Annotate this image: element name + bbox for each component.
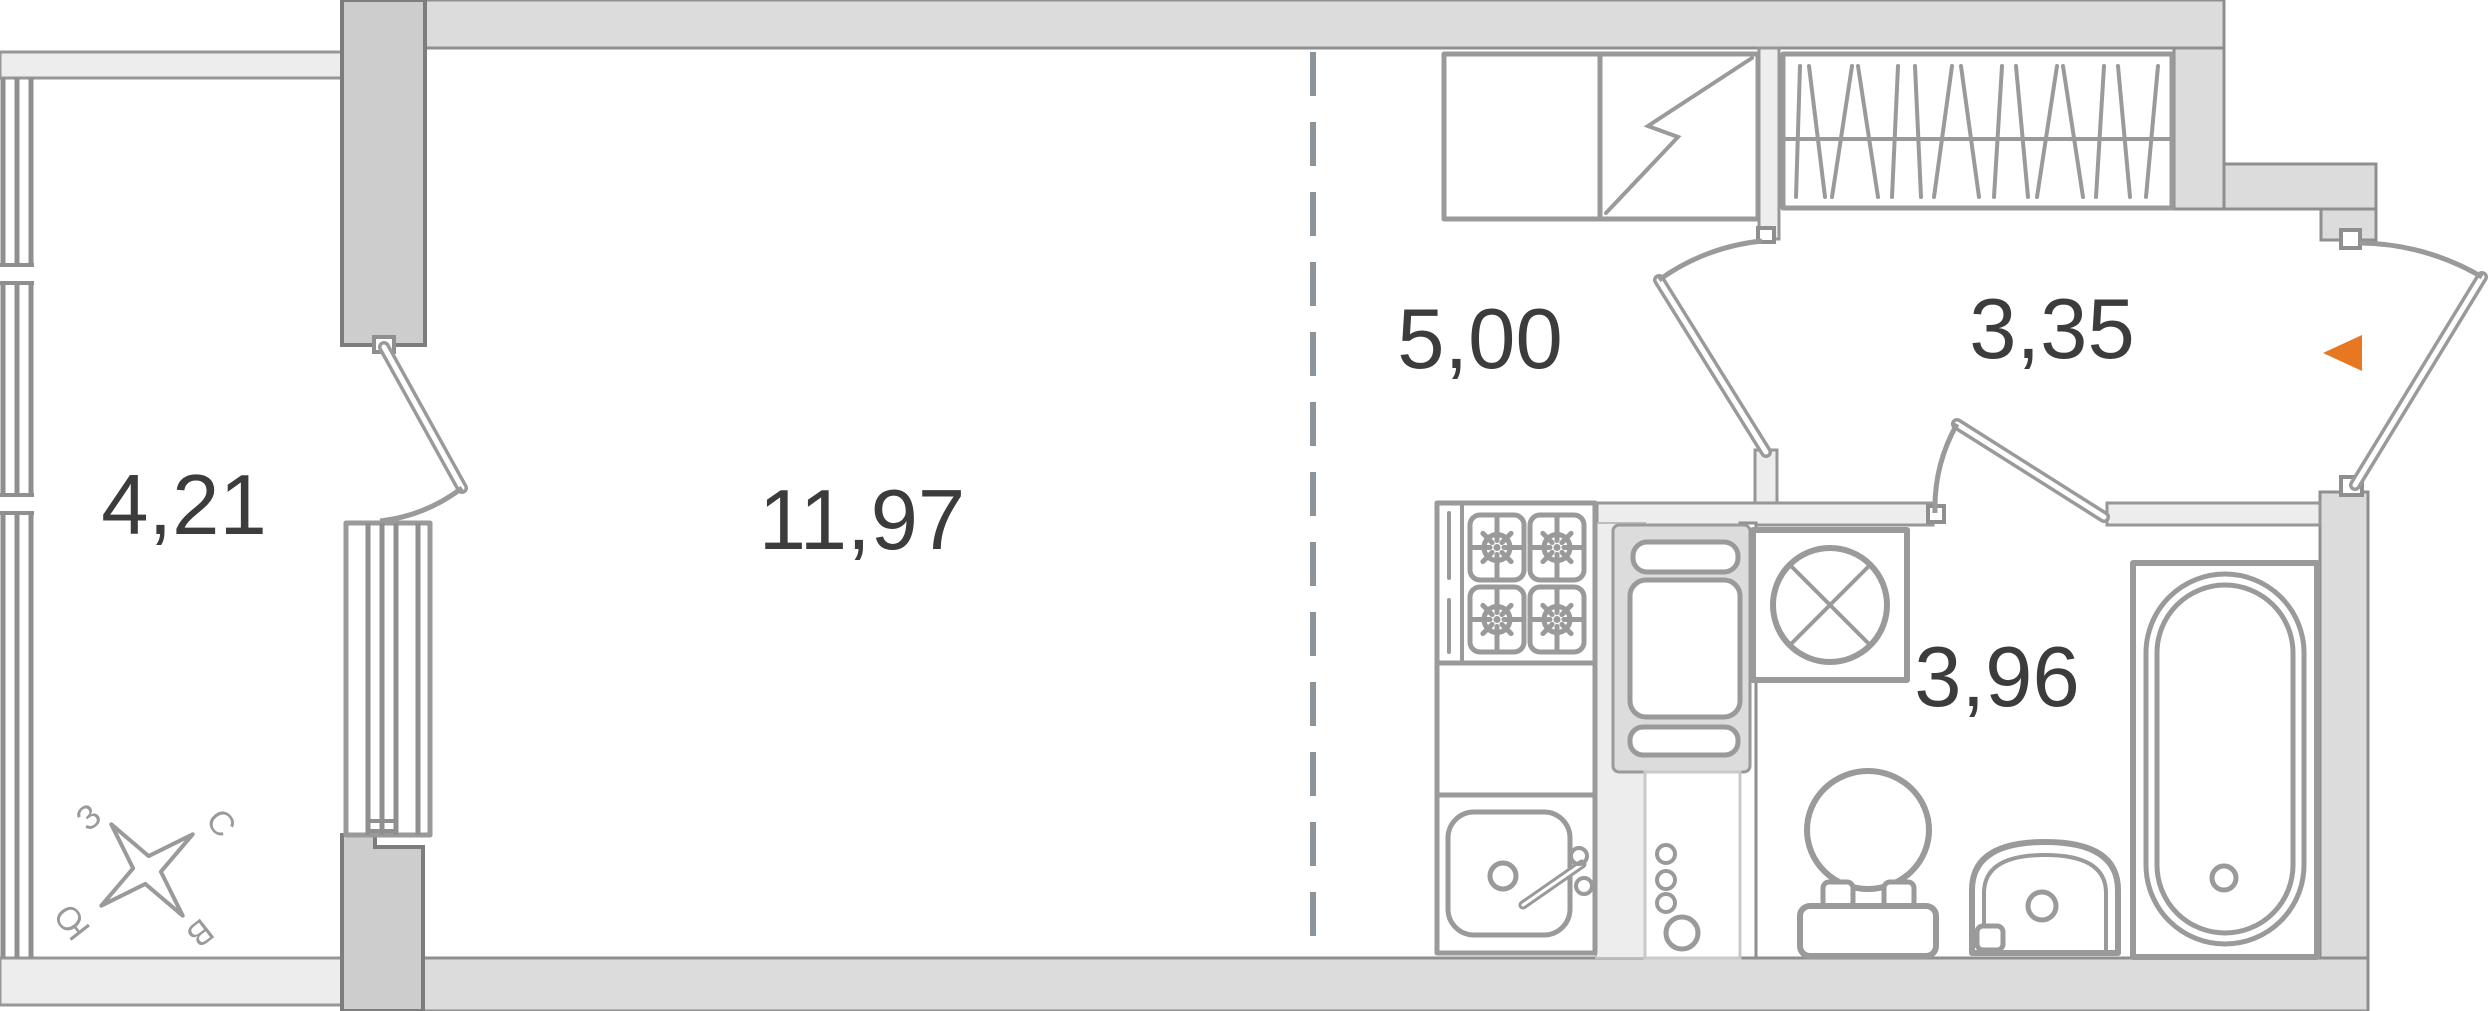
area-label-living-room: 11,97 (759, 473, 965, 568)
wardrobe-icon (1783, 54, 2172, 208)
door-swing-arc (1935, 424, 1957, 513)
stove-icon (1437, 503, 1595, 663)
door-swing-arc (380, 488, 462, 521)
entrance-arrow-icon (2323, 335, 2362, 371)
compass-north-label: С (198, 802, 243, 845)
compass-west-label: З (69, 796, 109, 838)
compass-star (101, 824, 192, 915)
door-hinge (2341, 230, 2360, 248)
compass-east-label: В (179, 911, 220, 955)
wall-kitchen-hallway-upper (1759, 48, 1779, 239)
kitchen-sink-icon (1437, 795, 1595, 953)
wall-top (347, 0, 2224, 48)
area-label-balcony: 4,21 (101, 458, 266, 553)
bathroom-sink-icon (1972, 842, 2118, 953)
floor-plan: З С Ю В 4,21 11,97 5,00 3,35 3,96 (0, 0, 2489, 1011)
wall-right (2320, 492, 2368, 958)
kitchen-counter-icon (1613, 525, 1750, 772)
wall-hall-bath-left (1597, 503, 1933, 525)
toilet-icon (1800, 771, 1936, 956)
wall-top-right-jog-horizontal (2224, 164, 2376, 209)
balcony-window (346, 523, 430, 835)
floor-plan-canvas: З С Ю В 4,21 11,97 5,00 3,35 3,96 (0, 0, 2489, 1011)
balcony-block (342, 0, 462, 1011)
door-swing-arc (2360, 243, 2482, 277)
area-label-bathroom: 3,96 (1914, 630, 2079, 725)
kitchen-cabinet-icon (1437, 663, 1595, 795)
bathroom-door (1928, 424, 2104, 522)
area-label-hallway: 3,35 (1969, 282, 2134, 377)
pylon-upper (342, 0, 425, 345)
compass-south-label: Ю (47, 897, 98, 947)
kitchen-appliances (1437, 503, 1750, 958)
balcony-parapet (0, 52, 346, 78)
wall-top-right-jog-vertical (2174, 48, 2224, 209)
bathtub-icon (2133, 563, 2317, 957)
balcony-door (374, 337, 462, 521)
kitchen-door (1659, 228, 1774, 452)
fridge-icon (1444, 54, 1600, 219)
entrance-door (2341, 230, 2482, 495)
bathroom-fixtures (1753, 530, 2317, 957)
washing-machine-icon (1753, 530, 1907, 680)
wall-hall-bath-right (2107, 503, 2320, 525)
door-swing-arc (1659, 241, 1762, 280)
area-label-kitchen: 5,00 (1397, 292, 1562, 387)
balcony-glazing (0, 78, 34, 958)
wall-kitchen-door-stub (1755, 450, 1777, 507)
wall-bottom (342, 958, 2368, 1011)
electrical-panel-icon (1600, 54, 1758, 219)
pylon-lower (342, 835, 423, 1011)
top-appliances (1444, 54, 1758, 219)
compass-rose-icon: З С Ю В (47, 796, 243, 954)
riser-pipes-icon (1645, 772, 1740, 958)
balcony-wall-bottom (0, 958, 342, 1005)
